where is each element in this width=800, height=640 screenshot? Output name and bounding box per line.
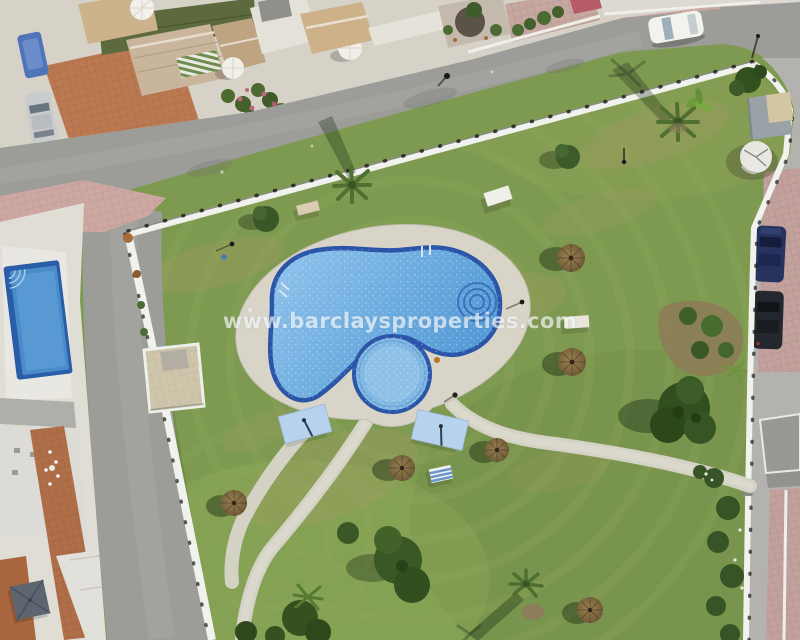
shrub [133, 270, 141, 278]
pool-marker [434, 357, 440, 363]
garden-shed [748, 92, 793, 140]
parked-car [752, 290, 784, 349]
shrub [337, 522, 359, 544]
shrub [137, 301, 145, 309]
scene-canvas [0, 0, 800, 640]
shrub [123, 233, 133, 243]
pump-house [144, 344, 204, 412]
bench [561, 315, 590, 334]
aerial-photo: www.barclaysproperties.com [0, 0, 800, 640]
grey-square-umbrella [7, 580, 51, 624]
parked-car [754, 225, 787, 282]
shrub [140, 328, 148, 336]
